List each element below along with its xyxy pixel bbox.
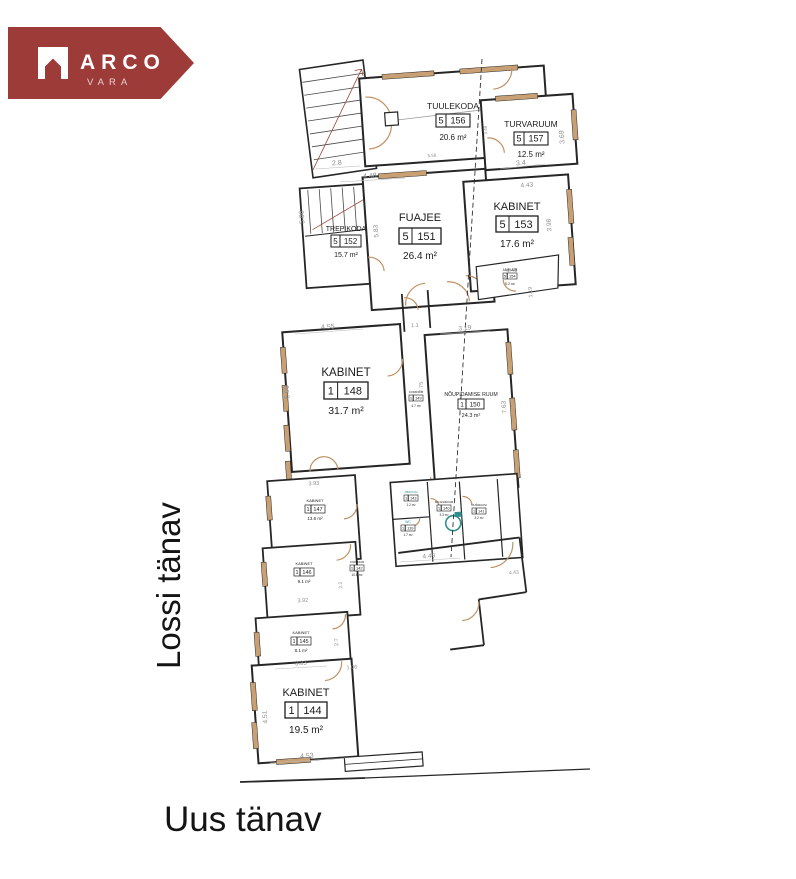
svg-text:152: 152 <box>344 237 358 246</box>
room-label-kabinet-144: KABINET 1 144 19.5 m² <box>282 687 329 736</box>
room-label-kabinet-147: KABINET 1 147 13.6 m² <box>305 498 325 521</box>
svg-text:156: 156 <box>450 116 465 126</box>
svg-text:144: 144 <box>303 705 321 717</box>
room-number-box: 5 152 <box>331 235 361 247</box>
room-number-box: 1 140 <box>437 505 451 511</box>
room-label-koridor-149: KORIDOR 1 149 4.7 m² <box>409 390 424 408</box>
dimension-label: 2.8 <box>332 160 342 168</box>
dimension-label: 3.19 <box>458 325 471 333</box>
room-area: 17.6 m² <box>500 239 535 250</box>
dimension-label: 3.4 <box>516 160 526 168</box>
room-name: KABINET <box>282 687 329 699</box>
room-area: 1.7 m² <box>403 533 412 537</box>
room-label-koridor-142: KORIDOR 1 142 10.6 m² <box>350 560 365 577</box>
dimension-label: 4.43 <box>520 182 533 190</box>
svg-text:154: 154 <box>509 274 516 279</box>
dimension-label: 7.63 <box>501 400 509 413</box>
dimension-label: 2.7 <box>334 638 341 646</box>
dimension-label: 2.2 <box>338 581 344 589</box>
dimension-label: 5.58 <box>427 153 437 159</box>
room-number-box: 1 143 <box>404 495 418 501</box>
room-name: DUŠIRUUM <box>471 502 487 507</box>
svg-text:1: 1 <box>306 507 309 513</box>
room-label-fuajee: FUAJEE 5 151 26.4 m² <box>399 212 441 262</box>
room-area: 12.5 m² <box>517 150 544 159</box>
room-name: KABINET <box>321 367 370 379</box>
svg-text:1: 1 <box>473 510 475 514</box>
room-area: 1.2 m² <box>406 503 415 507</box>
dimension-label: 4.43 <box>509 570 519 577</box>
room-name: TUULEKODA <box>427 101 479 111</box>
street-label-lossi: Lossi tänav <box>150 477 188 669</box>
page: ARCO VARA Lossi tänav Uus tänav <box>0 0 796 879</box>
room-area: 15.7 m² <box>334 252 358 259</box>
room-number-box: 5 157 <box>514 132 548 145</box>
room-number-box: 5 156 <box>436 114 470 127</box>
room-name: KABINET <box>295 561 313 566</box>
svg-text:1: 1 <box>402 527 404 531</box>
room-area: 3.3 m² <box>439 513 448 517</box>
room-number-box: 5 153 <box>496 216 538 232</box>
room-area: 4.7 m² <box>411 404 421 408</box>
room-number-box: 1 142 <box>350 565 364 571</box>
room-name: WC <box>405 520 411 524</box>
room-area: 8.1 m² <box>295 648 308 653</box>
logo-text-arco: ARCO <box>80 51 166 75</box>
svg-text:1: 1 <box>460 402 464 409</box>
svg-text:151: 151 <box>417 231 435 243</box>
svg-text:157: 157 <box>528 134 543 144</box>
svg-text:5: 5 <box>402 231 408 243</box>
svg-text:5: 5 <box>499 219 505 231</box>
room-number-box: 5 151 <box>399 228 441 244</box>
room-area: 13.6 m² <box>307 516 323 521</box>
floor-plan: 2.8 4.48 5.58 3.48 3.4 3.69 4.43 5.96 5.… <box>215 45 615 785</box>
svg-text:149: 149 <box>415 396 422 401</box>
svg-text:1: 1 <box>405 497 407 501</box>
room-number-box: 1 141 <box>472 508 486 514</box>
architecture <box>240 59 590 782</box>
svg-text:153: 153 <box>514 219 532 231</box>
room-kabinet144-walls <box>248 654 423 777</box>
room-area: 5.2 m² <box>505 282 516 286</box>
room-number-box: 1 144 <box>285 702 327 718</box>
room-name: TREPIKODA <box>326 226 367 233</box>
room-name: WC-ESIRUUM <box>435 500 454 504</box>
svg-text:5: 5 <box>438 116 443 126</box>
dimension-label: 3.93 <box>308 481 319 488</box>
room-label-kabinet-153: KABINET 5 153 17.6 m² <box>493 201 540 250</box>
room-kabinet148-walls <box>276 324 410 481</box>
svg-text:147: 147 <box>313 507 322 513</box>
dimension-label: 5.83 <box>373 224 381 237</box>
svg-text:5: 5 <box>333 237 338 246</box>
room-area: 20.6 m² <box>439 133 466 142</box>
svg-text:1: 1 <box>292 639 295 645</box>
room-number-box: 1 148 <box>324 382 368 399</box>
room-name: TURVARUUM <box>504 119 558 129</box>
room-name: ABIRUUM <box>503 268 518 272</box>
room-name: KORIDOR <box>409 390 424 394</box>
logo-text-vara: VARA <box>87 77 132 88</box>
room-number-box: 1 139 <box>401 525 415 531</box>
dimension-label: 4.49 <box>422 553 435 561</box>
dimension-label: 5.96 <box>299 210 307 224</box>
street-label-uus: Uus tänav <box>164 800 322 840</box>
svg-text:5: 5 <box>516 134 521 144</box>
room-label-kabinet-148: KABINET 1 148 31.7 m² <box>321 367 370 417</box>
svg-text:1: 1 <box>288 705 294 717</box>
dimension-label: 4.55 <box>321 324 335 332</box>
dimension-label: 3.69 <box>559 130 567 144</box>
dimension-label: 3.98 <box>546 218 554 231</box>
dimension-label: 4.51 <box>262 710 270 723</box>
svg-text:141: 141 <box>478 510 484 514</box>
room-name: KABINET <box>292 630 310 635</box>
svg-text:150: 150 <box>470 402 481 409</box>
dimension-label: 1.06 <box>346 665 357 672</box>
room-name: KABINET <box>493 201 540 213</box>
room-area: 24.3 m² <box>462 413 481 419</box>
dimension-label: 3.92 <box>297 598 308 605</box>
dimension-label: 1.19 <box>528 287 535 298</box>
svg-text:139: 139 <box>407 527 413 531</box>
svg-text:146: 146 <box>302 570 311 576</box>
dimension-label: 1.1 <box>411 323 419 330</box>
room-area: 9.1 m² <box>298 579 311 584</box>
room-number-box: 1 145 <box>291 637 311 645</box>
room-area: 3.2 m² <box>474 516 483 520</box>
room-name: KORIDOR <box>350 560 365 564</box>
room-area: 26.4 m² <box>403 251 438 262</box>
room-area: 10.6 m² <box>351 573 363 577</box>
room-number-box: 1 146 <box>294 568 314 576</box>
dimension-label: 4.53 <box>300 753 314 761</box>
room-area: 19.5 m² <box>289 725 324 736</box>
svg-text:1: 1 <box>328 386 334 398</box>
room-name: NÕUPIDAMISE RUUM <box>444 391 497 398</box>
room-number-box: 1 150 <box>458 399 484 409</box>
room-name: KABINET <box>306 498 324 503</box>
svg-text:1: 1 <box>438 507 440 511</box>
room-number-box: 1 147 <box>305 505 325 513</box>
room-area: 31.7 m² <box>328 405 364 417</box>
dimension-label: 6.98 <box>284 385 292 399</box>
room-number-box: 1 149 <box>409 395 423 401</box>
svg-text:148: 148 <box>344 386 362 398</box>
svg-text:1: 1 <box>295 570 298 576</box>
pavement-edge <box>240 769 590 782</box>
dimension-label: 3.33 <box>295 661 308 668</box>
room-name: FUAJEE <box>399 212 441 224</box>
svg-text:140: 140 <box>443 507 449 511</box>
house-icon <box>38 47 68 79</box>
dimension-label: 3.48 <box>483 125 489 135</box>
svg-text:145: 145 <box>299 639 308 645</box>
svg-text:143: 143 <box>410 497 416 501</box>
room-name: ABIRUUM <box>405 490 419 494</box>
room-number-box: 5 154 <box>503 273 517 279</box>
dimension-label: 4.48 <box>363 173 377 181</box>
logo: ARCO VARA <box>8 27 194 99</box>
svg-text:142: 142 <box>356 566 363 571</box>
